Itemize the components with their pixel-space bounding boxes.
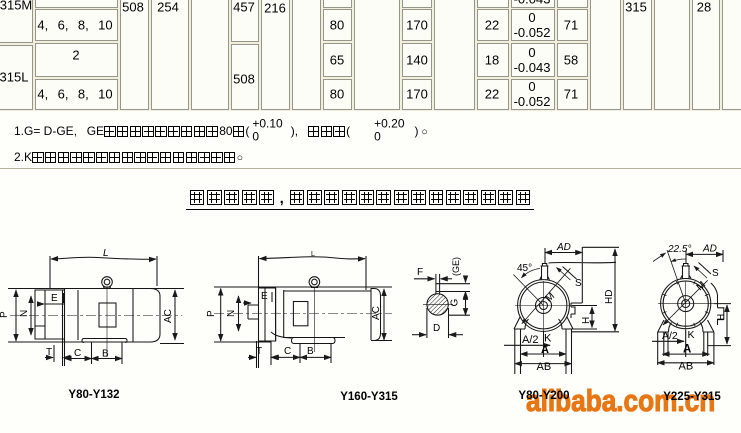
svg-text:B: B xyxy=(307,346,314,357)
svg-text:T: T xyxy=(46,347,52,358)
svg-text:D: D xyxy=(433,323,440,334)
svg-text:C: C xyxy=(74,348,81,359)
svg-text:A/2: A/2 xyxy=(522,334,539,346)
svg-text:AD: AD xyxy=(702,244,717,255)
svg-text:T: T xyxy=(256,346,262,357)
svg-text:N: N xyxy=(19,310,30,317)
svg-text:A/2: A/2 xyxy=(662,330,678,342)
svg-text:E: E xyxy=(51,293,58,304)
svg-text:F: F xyxy=(417,267,423,278)
svg-text:P: P xyxy=(0,311,10,318)
svg-text:S: S xyxy=(575,278,582,289)
svg-text:45°: 45° xyxy=(517,263,532,274)
svg-text:C: C xyxy=(284,346,291,357)
svg-text:S: S xyxy=(712,268,719,279)
svg-text:HD: HD xyxy=(604,290,615,304)
svg-text:H: H xyxy=(581,317,592,324)
svg-text:AC: AC xyxy=(163,309,174,323)
svg-text:H: H xyxy=(716,314,727,321)
svg-text:AD: AD xyxy=(556,242,571,253)
svg-text:AB: AB xyxy=(537,361,552,373)
svg-text:AB: AB xyxy=(679,361,694,373)
svg-text:A: A xyxy=(683,344,691,356)
svg-text:K: K xyxy=(688,329,695,341)
svg-text:A: A xyxy=(541,344,549,356)
svg-text:(GE): (GE) xyxy=(451,257,461,276)
svg-text:B: B xyxy=(102,349,109,360)
svg-text:L: L xyxy=(103,248,109,259)
svg-text:G: G xyxy=(450,299,461,307)
svg-text:AC: AC xyxy=(371,306,382,320)
svg-text:22.5°: 22.5° xyxy=(667,244,691,255)
svg-text:K: K xyxy=(544,333,552,345)
svg-text:L: L xyxy=(311,251,315,258)
